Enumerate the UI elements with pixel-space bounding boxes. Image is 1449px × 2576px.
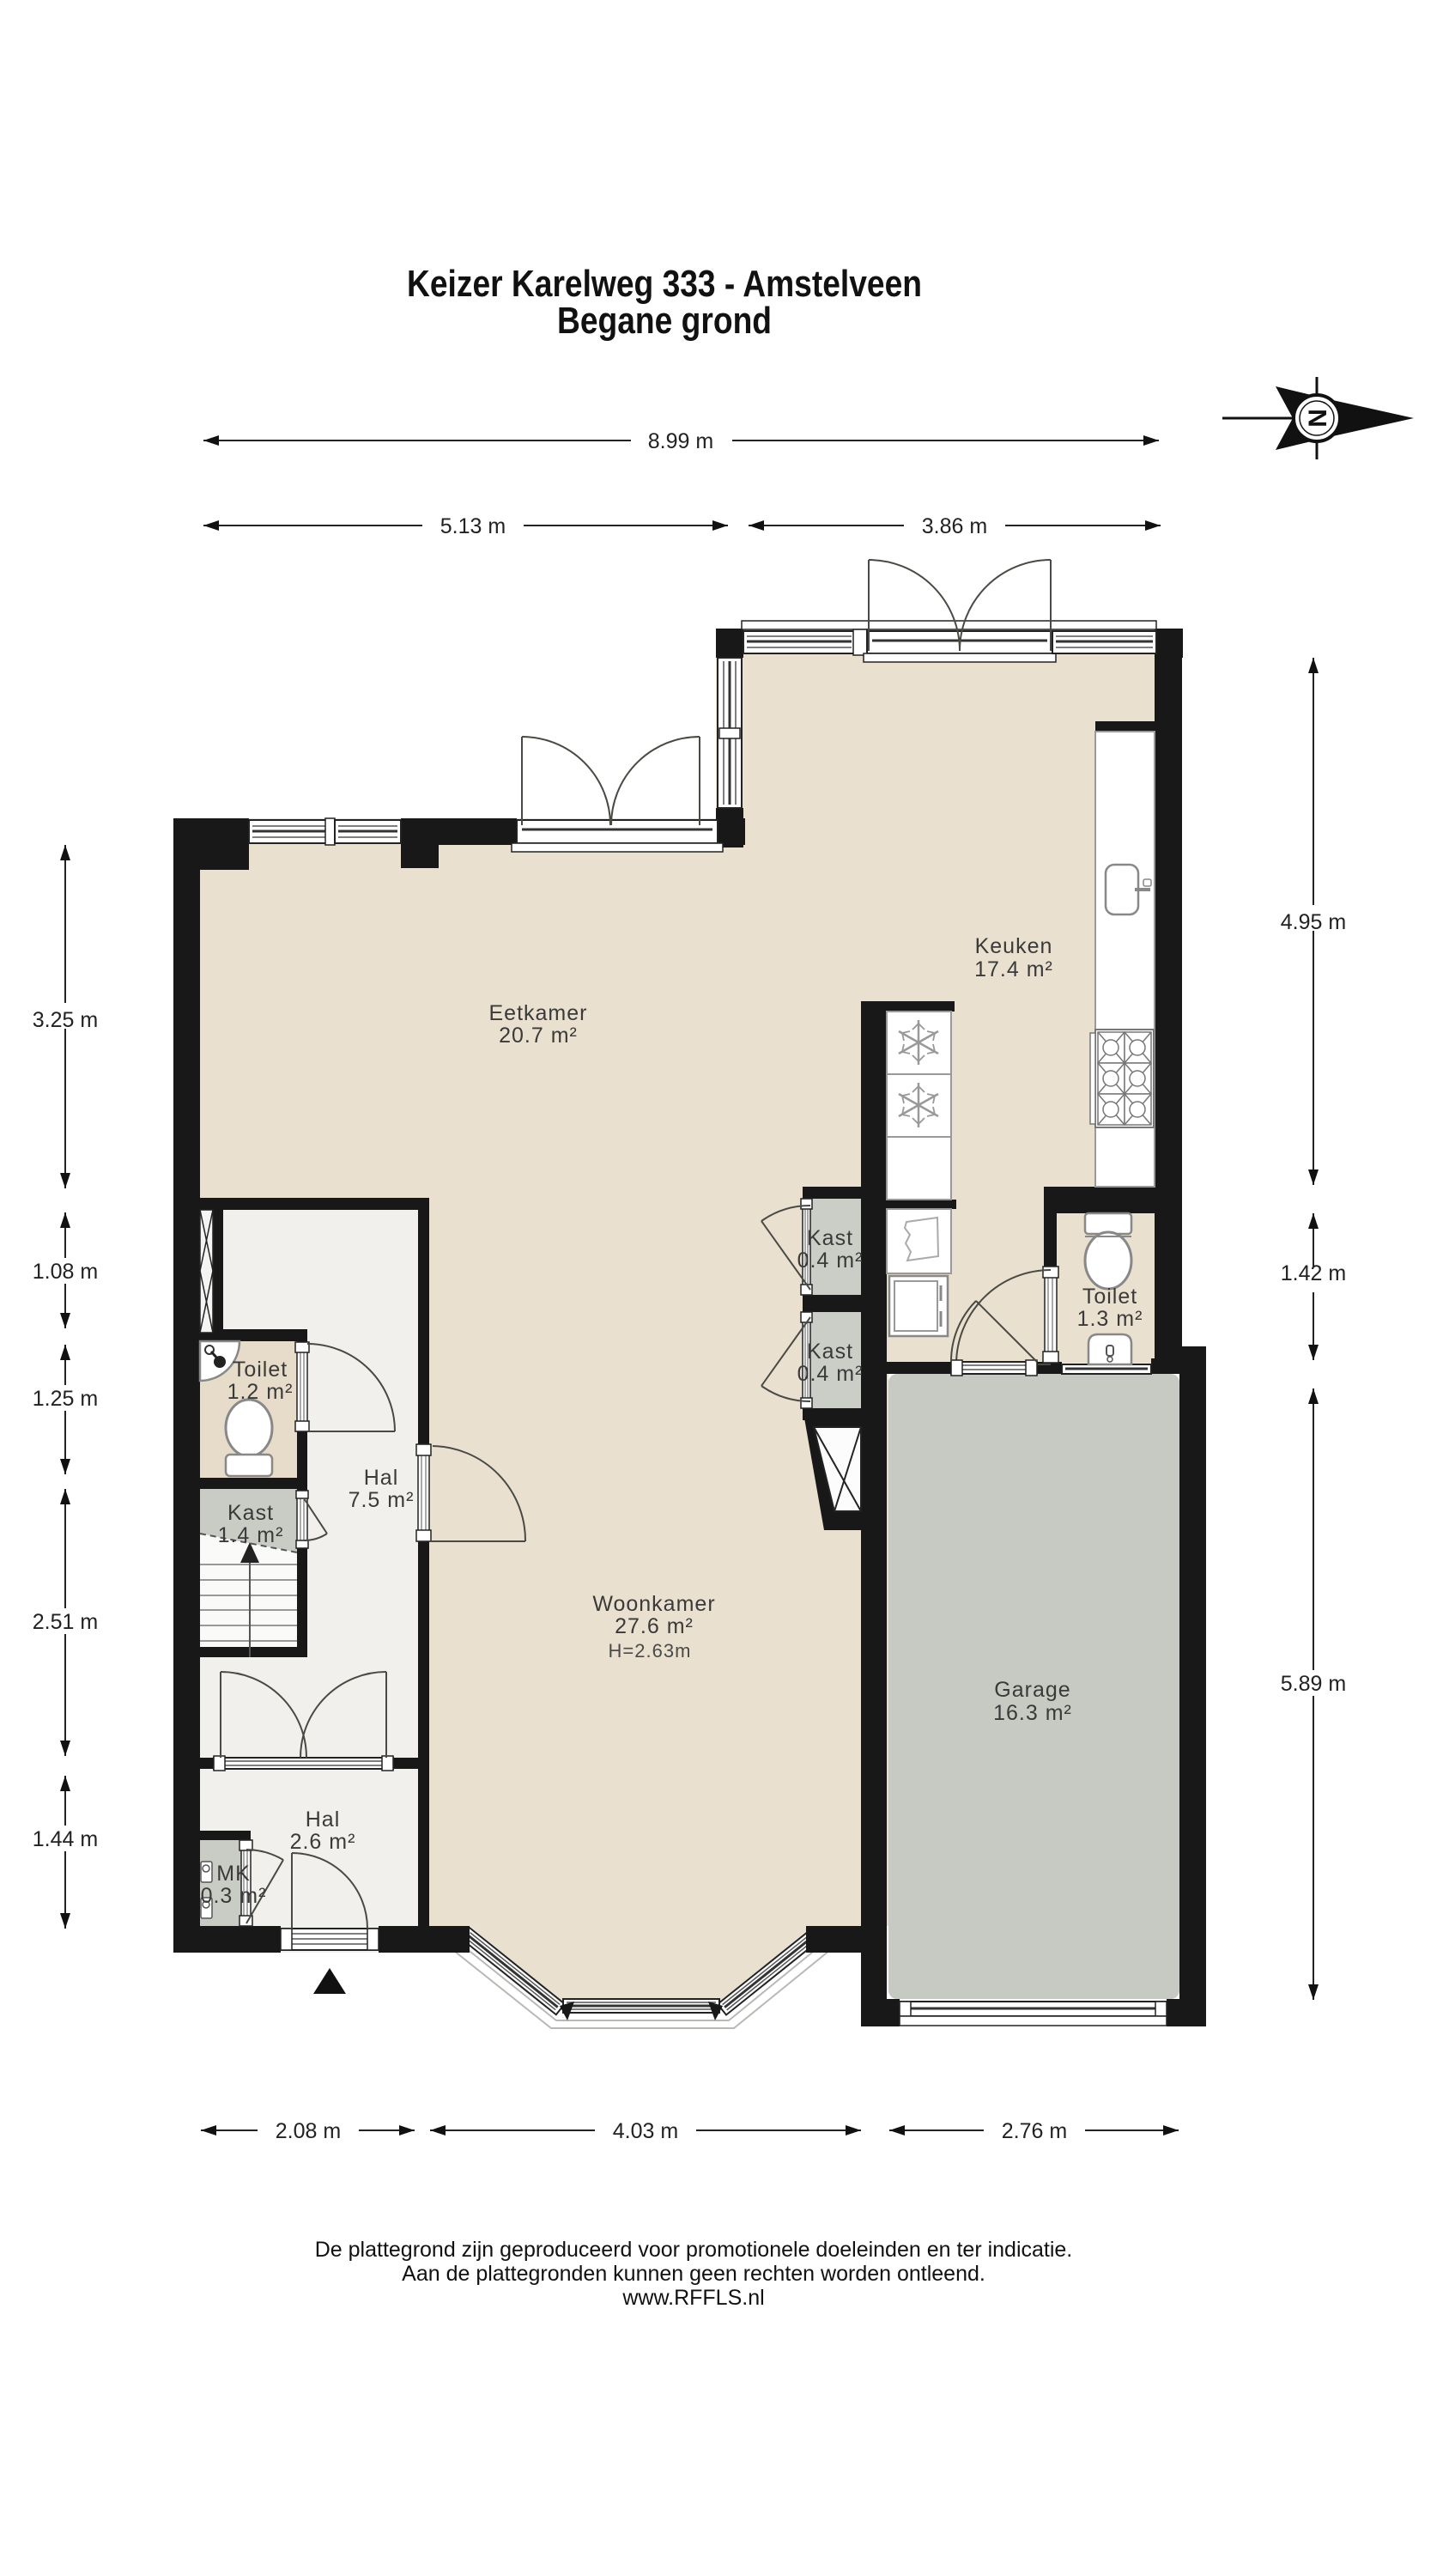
svg-text:Hal: Hal [364,1466,399,1490]
svg-text:1.44 m: 1.44 m [33,1827,98,1851]
svg-text:Kast: Kast [227,1501,274,1525]
svg-text:Begane grond: Begane grond [557,300,772,342]
svg-text:0.4 m²: 0.4 m² [797,1362,864,1386]
svg-text:7.5 m²: 7.5 m² [349,1488,415,1512]
svg-text:27.6 m²: 27.6 m² [615,1614,694,1638]
svg-text:4.95 m: 4.95 m [1281,910,1346,934]
svg-text:Kast: Kast [807,1340,853,1364]
svg-text:Aan de plattegronden kunnen ge: Aan de plattegronden kunnen geen rechten… [402,2262,985,2286]
svg-text:1.3 m²: 1.3 m² [1077,1307,1143,1331]
svg-text:Kast: Kast [807,1226,853,1250]
svg-text:2.76 m: 2.76 m [1002,2119,1067,2143]
svg-text:De plattegrond zijn geproducee: De plattegrond zijn geproduceerd voor pr… [315,2238,1073,2262]
svg-text:2.51 m: 2.51 m [33,1610,98,1634]
svg-text:1.2 m²: 1.2 m² [227,1380,294,1404]
svg-text:H=2.63m: H=2.63m [609,1640,692,1662]
svg-text:5.13 m: 5.13 m [440,514,506,538]
svg-text:Toilet: Toilet [1082,1285,1137,1309]
svg-text:5.89 m: 5.89 m [1281,1672,1346,1696]
svg-text:Garage: Garage [994,1678,1070,1702]
svg-text:Keizer Karelweg 333 - Amstelve: Keizer Karelweg 333 - Amstelveen [407,263,922,305]
svg-text:3.25 m: 3.25 m [33,1008,98,1032]
svg-text:N: N [1303,409,1331,428]
svg-text:www.RFFLS.nl: www.RFFLS.nl [621,2286,764,2310]
svg-text:0.4 m²: 0.4 m² [797,1249,864,1273]
svg-text:Keuken: Keuken [975,934,1053,958]
svg-text:Toilet: Toilet [233,1358,288,1382]
svg-text:2.08 m: 2.08 m [276,2119,341,2143]
svg-text:MK: MK [216,1862,251,1886]
svg-text:1.25 m: 1.25 m [33,1387,98,1411]
svg-text:Woonkamer: Woonkamer [592,1592,715,1616]
svg-text:1.4 m²: 1.4 m² [218,1523,284,1547]
svg-text:1.08 m: 1.08 m [33,1260,98,1284]
svg-text:Hal: Hal [306,1807,341,1832]
svg-text:0.3 m²: 0.3 m² [201,1884,267,1908]
svg-text:20.7 m²: 20.7 m² [499,1024,578,1048]
svg-text:2.6 m²: 2.6 m² [290,1830,356,1854]
svg-text:3.86 m: 3.86 m [922,514,987,538]
svg-text:1.42 m: 1.42 m [1281,1261,1346,1285]
svg-text:17.4 m²: 17.4 m² [974,957,1053,981]
svg-text:Eetkamer: Eetkamer [489,1001,588,1025]
svg-text:16.3 m²: 16.3 m² [993,1701,1072,1725]
svg-text:4.03 m: 4.03 m [613,2119,678,2143]
svg-text:8.99 m: 8.99 m [648,429,713,453]
